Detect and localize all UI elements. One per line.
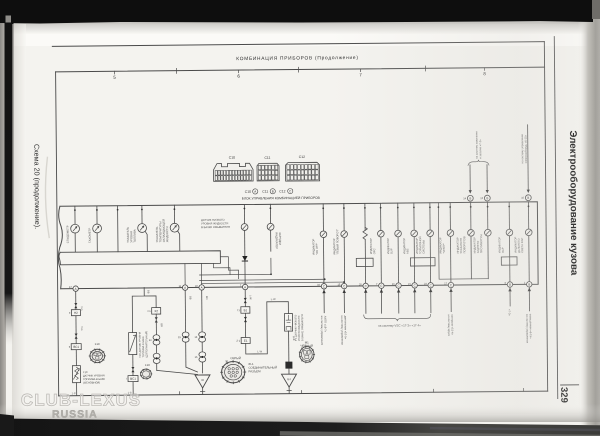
svg-text:CLUB-LEXUS: CLUB-LEXUS [21,392,141,410]
svg-text:F16: F16 [145,363,150,367]
svg-text:СПИДОМЕТР: СПИДОМЕТР [66,225,70,243]
svg-text:РАЗЪЕМ: РАЗЪЕМ [248,369,261,373]
svg-text:Y-G: Y-G [80,326,83,330]
svg-text:"OD OFF": "OD OFF" [316,243,319,255]
svg-text:A: A [254,190,256,194]
svg-text:ВС1: ВС1 [73,345,79,349]
svg-text:(ДОПОЛНИТЕЛЬНЫЙ): (ДОПОЛНИТЕЛЬНЫЙ) [144,331,148,358]
svg-text:RUSSIA: RUSSIA [52,409,98,421]
svg-text:Х2: Х2 [154,309,158,313]
svg-text:ВВ: ВВ [146,290,149,294]
svg-text:ВО: ВО [205,296,208,300]
svg-text:L-W: L-W [271,298,276,301]
svg-text:ЗАРЯДКИ: ЗАРЯДКИ [278,232,282,245]
svg-text:(ОСНОВНОЙ): (ОСНОВНОЙ) [83,380,100,384]
svg-text:В БАЧКЕ ОМЫВАТЕЛЯ: В БАЧКЕ ОМЫВАТЕЛЯ [301,314,304,341]
svg-text:СЕРЫЙ: СЕРЫЙ [230,356,241,360]
svg-text:Е1: Е1 [244,339,248,343]
svg-text:А: А [184,286,186,290]
svg-text:АКПП «19-7»: АКПП «19-7» [323,316,326,333]
svg-text:F19: F19 [95,342,100,346]
svg-text:БЛОК УПРАВЛЕНИЯ КОМБИНАЦИЕЙ ПР: БЛОК УПРАВЛЕНИЯ КОМБИНАЦИЕЙ ПРИБОРОВ [242,196,321,201]
svg-text:2-1: 2-1 [236,340,240,343]
svg-text:В-В: В-В [292,336,295,341]
svg-text:Схема 20 (продолжение).: Схема 20 (продолжение). [32,144,42,229]
svg-text:Н2: Н2 [74,311,78,315]
svg-text:А: А [75,287,77,291]
svg-text:ТОПЛИВА: ТОПЛИВА [133,229,137,242]
svg-text:А: А [244,285,246,289]
svg-text:C11: C11 [264,156,270,160]
svg-text:C10: C10 [245,190,251,194]
svg-text:ЧЕРНЫЙ: ЧЕРНЫЙ [300,344,313,348]
svg-text:ЖИДКОСТИ: ЖИДКОСТИ [165,226,169,242]
svg-text:IН: IН [201,378,204,382]
svg-text:ВВ: ВВ [160,323,163,327]
svg-text:C12: C12 [299,155,305,159]
svg-text:Ж: Ж [225,359,228,363]
svg-text:C11: C11 [262,190,268,194]
svg-text:L-W: L-W [249,295,252,300]
svg-text:L-W: L-W [257,350,262,353]
svg-text:ВВ: ВВ [189,296,192,300]
svg-text:А: А [201,286,203,290]
svg-text:ТАХОМЕТР: ТАХОМЕТР [88,228,92,243]
svg-text:на систему управления: на систему управления [320,316,323,346]
svg-text:В БАЧКЕ ОМЫВАТЕЛЯ: В БАЧКЕ ОМЫВАТЕЛЯ [201,226,230,229]
svg-text:C10: C10 [229,156,235,160]
svg-text:Б1: Б1 [244,308,248,312]
svg-text:C12: C12 [279,189,285,193]
svg-text:B: B [272,189,274,193]
svg-text:Е4: Е4 [287,377,291,381]
svg-text:ВС1: ВС1 [130,377,136,381]
